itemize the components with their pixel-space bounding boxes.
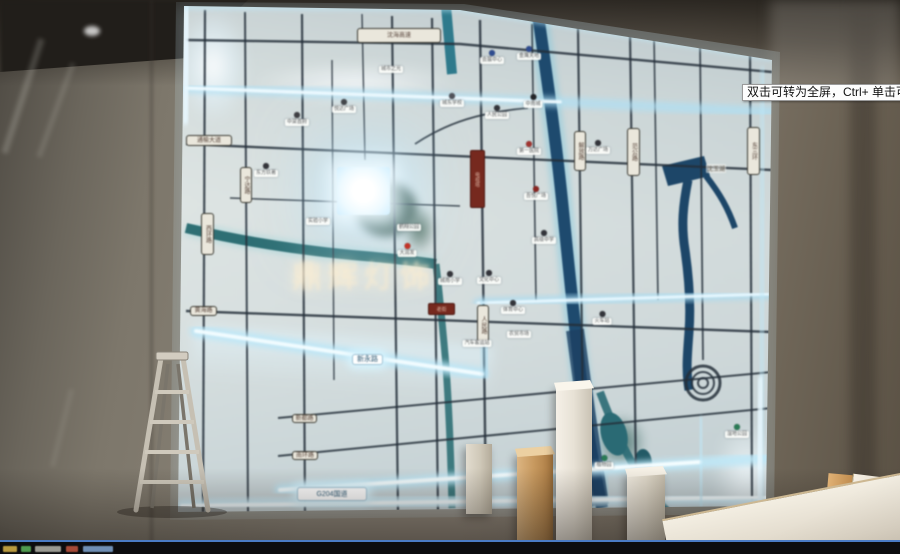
poi-chip: 悦达广场 xyxy=(332,99,356,113)
poi-chip-label: 东方玖著 xyxy=(254,170,278,177)
poi-chip: 城市之光 xyxy=(379,66,403,73)
poi-logo-icon xyxy=(263,163,269,169)
poi-chip-label: 城东学校 xyxy=(440,100,464,107)
poi-chip-label: 人民公园 xyxy=(485,112,509,119)
landmark-red-marker: 老街 xyxy=(428,303,455,315)
poi-chip: 体育中心 xyxy=(501,300,525,314)
bar-text-fragment xyxy=(21,546,31,552)
poi-logo-icon xyxy=(734,424,740,430)
poi-chip-label: 悦达广场 xyxy=(332,106,356,113)
road-plaque: 解放路 xyxy=(574,131,586,171)
poi-chip-label: 会展中心 xyxy=(480,57,504,64)
road-plaque: 人民路 xyxy=(477,305,489,345)
poi-logo-icon xyxy=(595,140,601,146)
poi-logo-icon xyxy=(449,93,455,99)
fullscreen-tooltip: 双击可转为全屏，Ctrl+ 单击可转为 xyxy=(742,84,900,101)
poi-chip-label: 农贸市场 xyxy=(507,331,531,338)
road-plaque: 通榆大道 xyxy=(186,135,232,146)
poi-chip-label: 汽车客运站 xyxy=(462,340,491,347)
poi-logo-icon xyxy=(404,243,410,249)
poi-chip: 会展中心 xyxy=(480,50,504,64)
poi-chip: 城东学校 xyxy=(440,93,464,107)
poi-logo-icon xyxy=(486,270,492,276)
poi-logo-icon xyxy=(599,311,605,317)
poi-chip: 汽车客运站 xyxy=(462,340,491,347)
poi-chip-label: 体育中心 xyxy=(501,307,525,314)
poi-logo-icon xyxy=(526,141,532,147)
wall-glare-spot xyxy=(84,26,100,36)
poi-logo-icon xyxy=(526,46,532,52)
poi-logo-icon xyxy=(341,99,347,105)
road-plaque: 西环路 xyxy=(201,213,214,255)
road-plaque: 东三环 xyxy=(747,127,760,175)
poi-chip-label: 万达广场 xyxy=(586,147,610,154)
road-plaque: 沈海高速 xyxy=(357,28,441,43)
poi-chip: 湿地公园 xyxy=(725,424,749,438)
wall-light-patch xyxy=(770,0,900,95)
bar-text-fragment xyxy=(35,546,61,552)
poi-chip: 农贸市场 xyxy=(507,331,531,338)
bar-text-fragment xyxy=(66,546,78,552)
lake-label: 沈玉湖 xyxy=(706,164,726,173)
road-plaque: 范公路 xyxy=(627,128,640,176)
poi-chip: 文化中心 xyxy=(477,270,501,284)
poi-chip: 人民公园 xyxy=(485,105,509,119)
poi-chip: 火车站 xyxy=(592,311,611,325)
poi-chip-label: 鹤翔公园 xyxy=(397,224,421,231)
road-plaque: 新都路 xyxy=(292,414,317,423)
poi-chip-label: 火车站 xyxy=(592,318,611,325)
poi-chip: 植物园 xyxy=(594,455,613,469)
poi-logo-icon xyxy=(530,94,536,100)
poi-chip: 金鹰天地 xyxy=(517,46,541,60)
poi-chip: 万达广场 xyxy=(586,140,610,154)
poi-chip-label: 中南城 xyxy=(523,101,542,108)
poi-chip-label: 中梁首府 xyxy=(285,119,309,126)
poi-chip: 鹤翔公园 xyxy=(397,224,421,231)
poi-chip-label: 湿地公园 xyxy=(725,431,749,438)
poi-logo-icon xyxy=(601,455,607,461)
poi-chip: 中南城 xyxy=(523,94,542,108)
poi-chip: 东方玖著 xyxy=(254,163,278,177)
poi-logo-icon xyxy=(541,230,547,236)
poi-chip: 吾悦广场 xyxy=(524,186,548,200)
poi-chip-label: 高级中学 xyxy=(532,237,556,244)
poi-chip: 实验小学 xyxy=(306,218,330,225)
poi-logo-icon xyxy=(510,300,516,306)
player-control-bar[interactable] xyxy=(0,540,900,554)
poi-chip-label: 吾悦广场 xyxy=(524,193,548,200)
poi-chip-label: 金鹰天地 xyxy=(517,53,541,60)
road-plaque: 新永路 xyxy=(352,354,383,365)
bar-text-fragment xyxy=(83,546,113,552)
poi-chip-label: 实验小学 xyxy=(306,218,330,225)
poi-logo-icon xyxy=(294,112,300,118)
poi-chip: 第一医院 xyxy=(517,141,541,155)
poi-logo-icon xyxy=(533,186,539,192)
poi-chip-label: 第一医院 xyxy=(517,148,541,155)
bar-text-fragment xyxy=(3,546,17,552)
poi-chip-label: 文化中心 xyxy=(477,277,501,284)
video-frame[interactable]: 沈海高速通榆大道西环路宁达路黄海路人民路解放路范公路东三环新都路南环路G204国… xyxy=(0,0,900,554)
road-plaque: 南环路 xyxy=(292,451,318,460)
poi-chip: 高级中学 xyxy=(532,230,556,244)
road-plaque: 黄海路 xyxy=(190,306,217,316)
landmark-red-marker: 电视塔 xyxy=(470,150,485,208)
road-plaque: 宁达路 xyxy=(240,167,252,203)
poi-chip: 中梁首府 xyxy=(285,112,309,126)
poi-logo-icon xyxy=(494,105,500,111)
poi-logo-icon xyxy=(489,50,495,56)
glow-watermark-text: 鼎辉灯饰 xyxy=(292,252,452,296)
poi-chip-label: 城市之光 xyxy=(379,66,403,73)
